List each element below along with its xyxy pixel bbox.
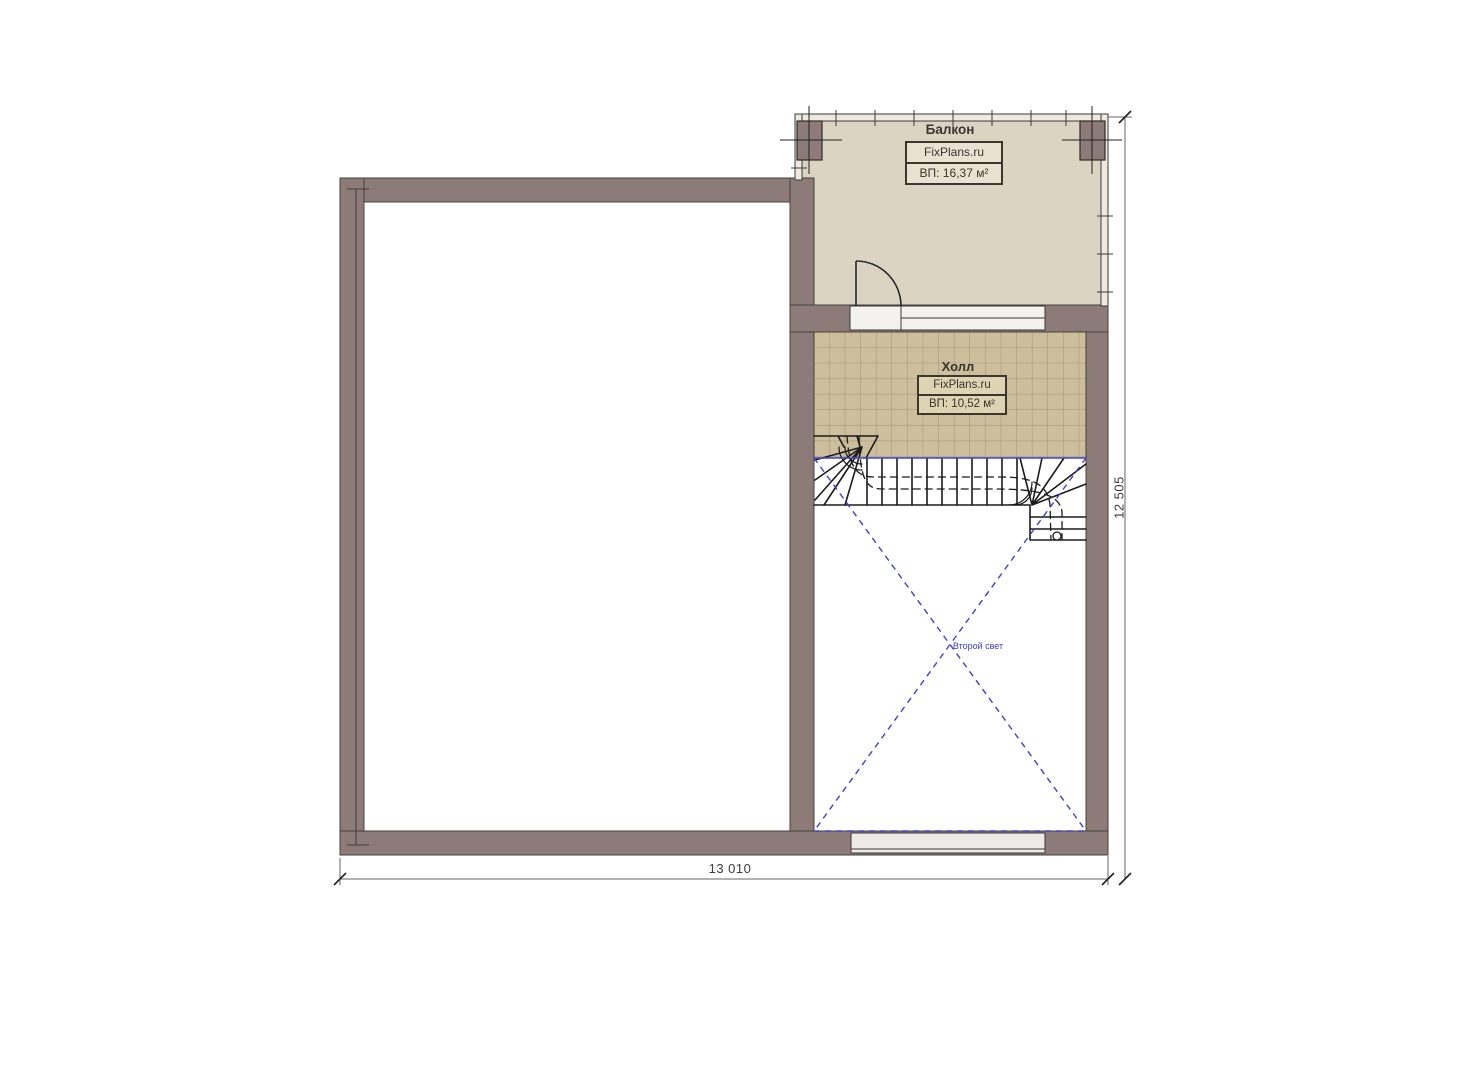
balcony-area-label: ВП: 16,37 м² <box>907 162 1001 183</box>
dimension-width-label: 13 010 <box>700 861 760 876</box>
wall-right <box>1086 305 1108 831</box>
hall-area-label: ВП: 10,52 м² <box>919 394 1005 413</box>
floor-plan-drawing <box>0 0 1473 1080</box>
wall-top-left-room <box>340 178 814 202</box>
hall-info-box: FixPlans.ru ВП: 10,52 м² <box>917 375 1007 415</box>
wall-middle <box>790 178 814 831</box>
newel-post <box>1053 532 1061 540</box>
hall-room-title: Холл <box>908 359 1008 374</box>
second-light-label: Второй свет <box>943 641 1013 651</box>
railing-top <box>795 114 1108 121</box>
bottom-window <box>851 833 1045 853</box>
wall-left <box>340 178 364 855</box>
balcony-room-title: Балкон <box>895 122 1005 137</box>
balcony-brand-label: FixPlans.ru <box>907 143 1001 162</box>
floor-plan-page: Балкон FixPlans.ru ВП: 16,37 м² Холл Fix… <box>0 0 1473 1080</box>
balcony-info-box: FixPlans.ru ВП: 16,37 м² <box>905 141 1003 185</box>
hall-brand-label: FixPlans.ru <box>919 377 1005 394</box>
dimension-height-label: 12 505 <box>1112 471 1127 525</box>
balcony-wall-opening <box>850 306 1045 330</box>
